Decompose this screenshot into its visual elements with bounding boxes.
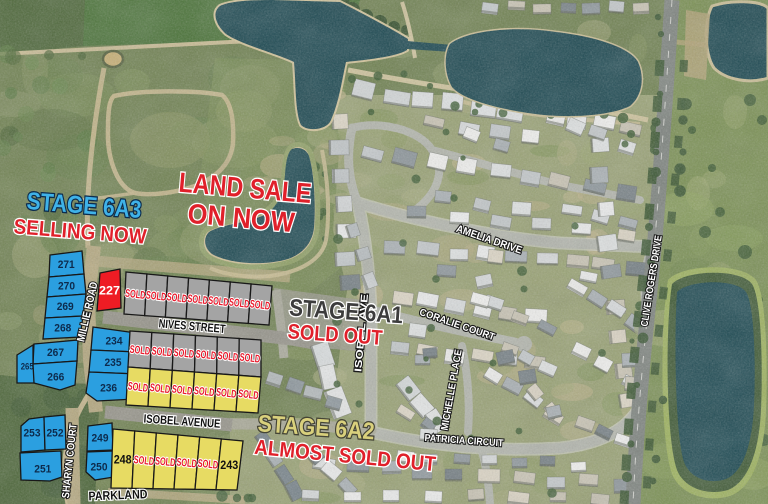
svg-text:PARKLAND: PARKLAND [88,487,147,503]
svg-text:SOLD: SOLD [237,388,259,402]
svg-text:249: 249 [92,432,109,444]
svg-text:SOLD: SOLD [145,289,167,303]
svg-text:SOLD: SOLD [239,352,261,366]
svg-text:235: 235 [105,357,122,369]
svg-text:253: 253 [24,428,41,440]
svg-text:252: 252 [47,428,64,440]
svg-text:SOLD: SOLD [149,382,171,396]
svg-text:SOLD: SOLD [187,293,209,307]
svg-text:227: 227 [99,283,120,297]
svg-text:SOLD: SOLD [154,455,176,469]
svg-text:251: 251 [34,463,51,475]
svg-text:269: 269 [57,301,74,313]
svg-text:SOLD: SOLD [129,344,151,358]
svg-text:SOLD: SOLD [124,288,146,302]
svg-text:SOLD: SOLD [151,345,173,359]
svg-text:SOLD: SOLD [127,380,149,394]
svg-text:SOLD: SOLD [195,348,217,362]
svg-text:234: 234 [106,335,124,347]
svg-text:248: 248 [114,452,132,466]
svg-text:267: 267 [47,347,64,359]
svg-text:SOLD: SOLD [228,296,250,310]
svg-text:265: 265 [21,361,34,371]
svg-text:268: 268 [54,322,71,334]
svg-text:SOLD: SOLD [207,295,229,309]
svg-text:250: 250 [91,461,108,473]
svg-text:SOLD: SOLD [217,350,239,364]
svg-text:SOLD: SOLD [176,456,198,470]
svg-text:243: 243 [220,458,238,472]
svg-text:266: 266 [47,372,64,384]
svg-text:236: 236 [100,383,117,395]
svg-text:SOLD: SOLD [171,383,193,397]
svg-text:SOLD: SOLD [197,458,219,472]
svg-text:SOLD: SOLD [193,385,215,399]
svg-text:SOLD: SOLD [133,454,155,468]
svg-text:SOLD: SOLD [249,298,271,312]
svg-text:SOLD: SOLD [215,386,237,400]
svg-text:SOLD: SOLD [166,291,188,305]
svg-text:SOLD: SOLD [173,347,195,361]
svg-text:271: 271 [58,259,75,271]
svg-text:270: 270 [58,280,75,292]
